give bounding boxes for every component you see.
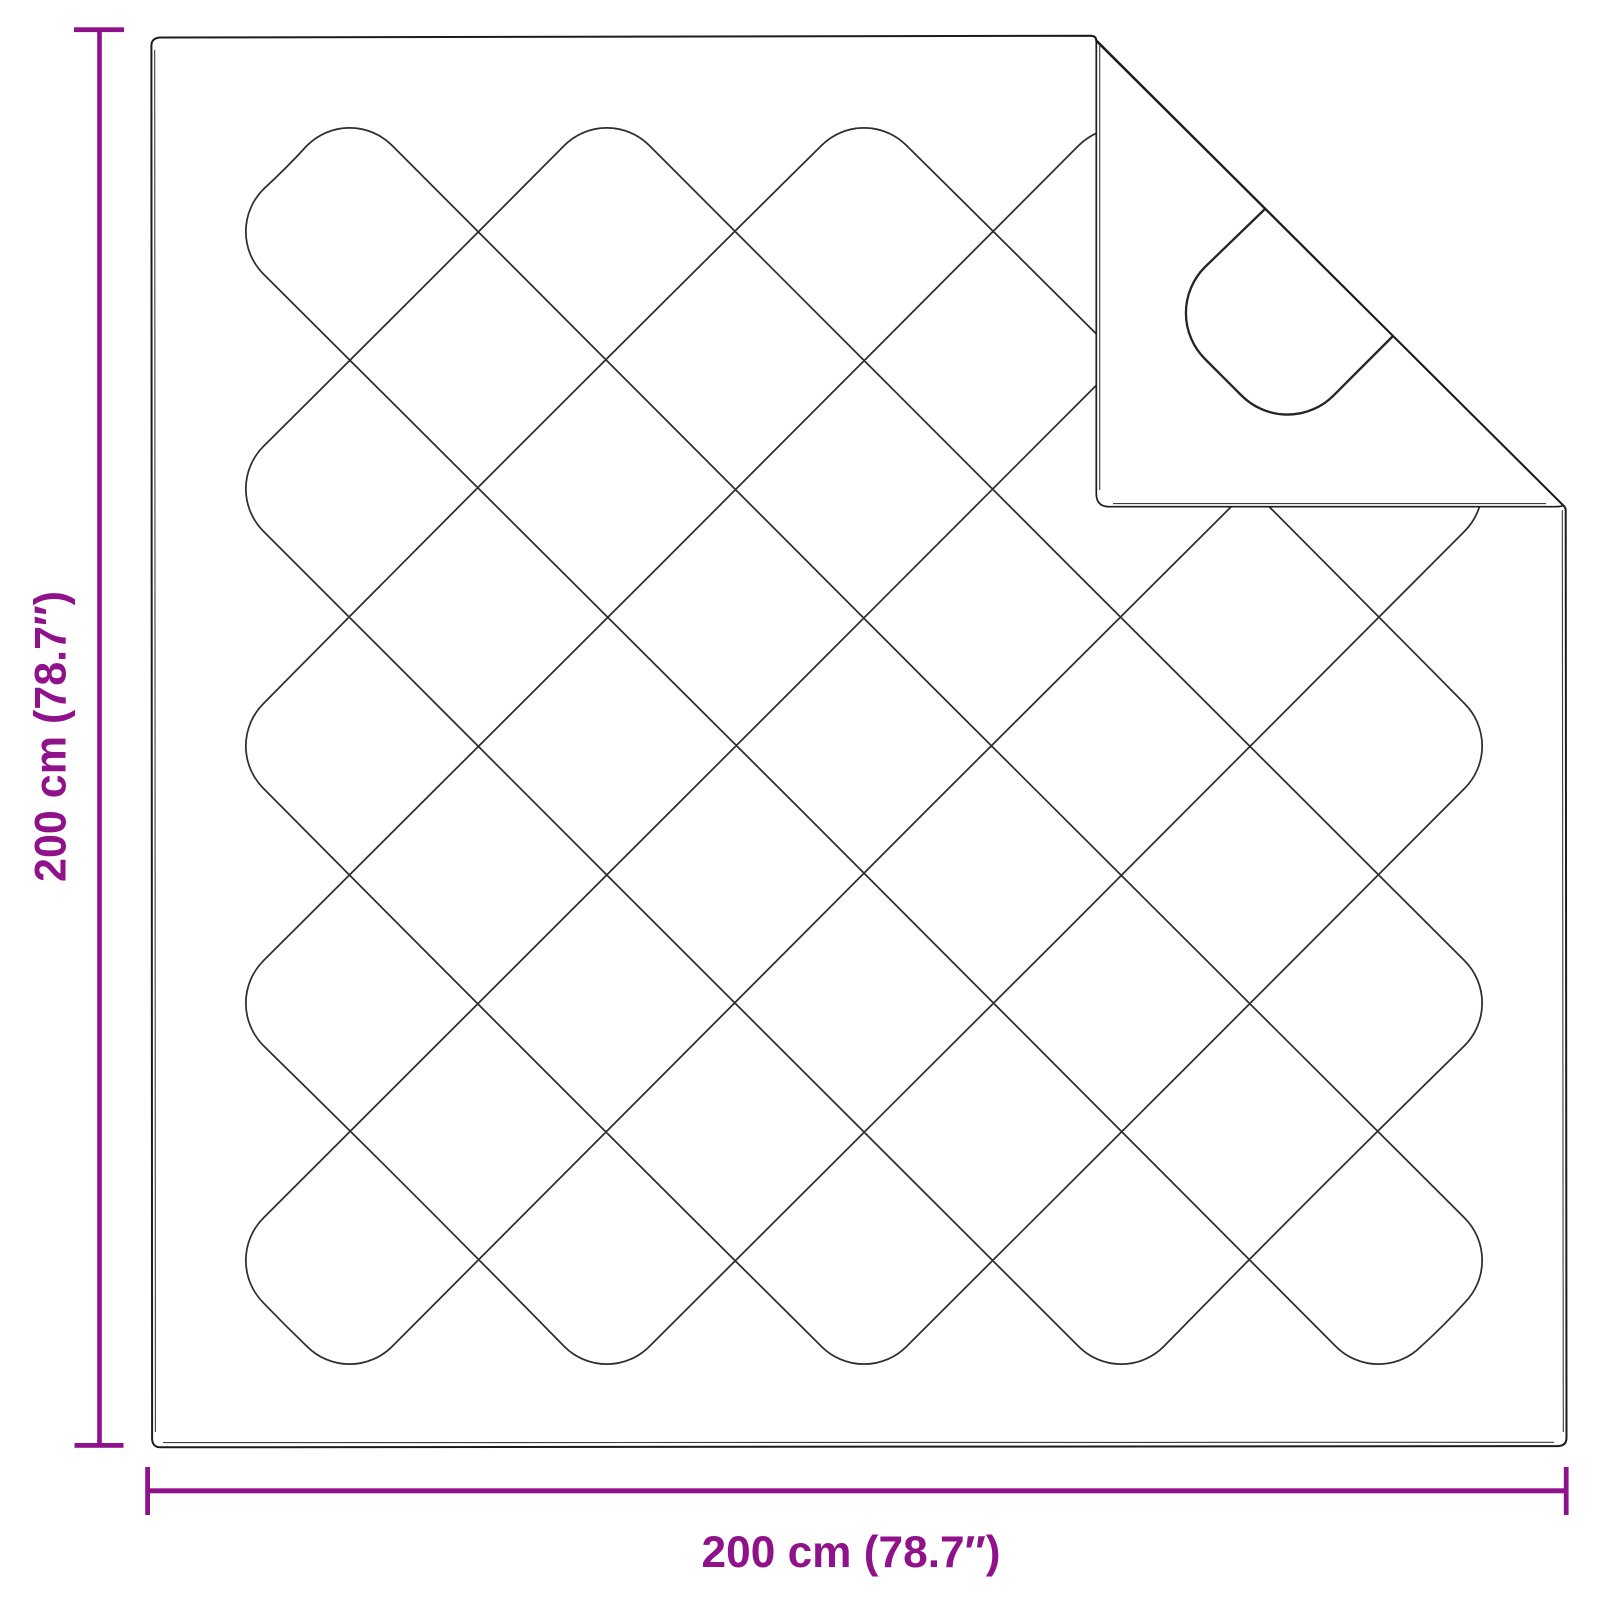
svg-text:200 cm (78.7″): 200 cm (78.7″) xyxy=(702,1528,1001,1577)
svg-text:200 cm (78.7″): 200 cm (78.7″) xyxy=(27,591,76,882)
